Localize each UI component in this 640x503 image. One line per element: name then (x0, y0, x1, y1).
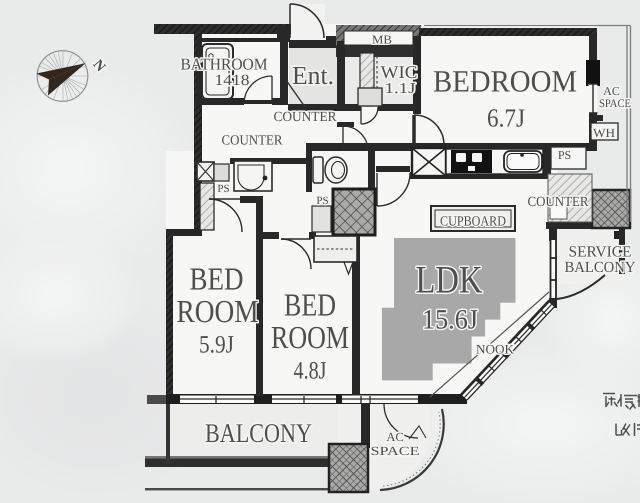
svg-text:1.1J: 1.1J (385, 81, 416, 97)
svg-text:BEDROOM: BEDROOM (433, 64, 577, 99)
svg-text:PS: PS (316, 195, 328, 207)
svg-text:BALCONY: BALCONY (205, 418, 312, 448)
svg-text:15.6J: 15.6J (422, 305, 478, 336)
svg-text:SPACE: SPACE (599, 98, 631, 110)
svg-text:PS: PS (217, 183, 229, 195)
svg-text:AC: AC (386, 430, 403, 444)
svg-text:5.9J: 5.9J (199, 332, 234, 359)
svg-text:MB: MB (372, 33, 392, 47)
svg-text:NOOK: NOOK (476, 342, 515, 357)
svg-text:WIC: WIC (381, 62, 418, 82)
svg-text:PS: PS (558, 148, 571, 162)
svg-text:COUNTER: COUNTER (528, 195, 590, 210)
svg-text:BED: BED (190, 261, 244, 297)
svg-text:BATHROOM: BATHROOM (181, 55, 268, 74)
svg-text:4.8J: 4.8J (294, 358, 327, 385)
svg-text:COUNTER: COUNTER (274, 110, 338, 125)
svg-text:LDK: LDK (416, 259, 483, 302)
svg-text:CUPBOARD: CUPBOARD (440, 215, 506, 230)
svg-text:BED: BED (284, 287, 336, 323)
svg-text:ROOM: ROOM (271, 319, 349, 355)
svg-text:WH: WH (593, 126, 615, 140)
svg-text:COUNTER: COUNTER (222, 134, 284, 149)
svg-text:SPACE: SPACE (371, 444, 420, 458)
svg-text:ROOM: ROOM (177, 293, 259, 329)
svg-text:SERVICE: SERVICE (569, 244, 632, 261)
svg-text:BALCONY: BALCONY (565, 259, 636, 276)
svg-text:1418: 1418 (215, 72, 250, 89)
svg-text:Ent.: Ent. (292, 61, 334, 90)
svg-text:6.7J: 6.7J (487, 104, 525, 133)
svg-text:AC: AC (603, 84, 620, 98)
